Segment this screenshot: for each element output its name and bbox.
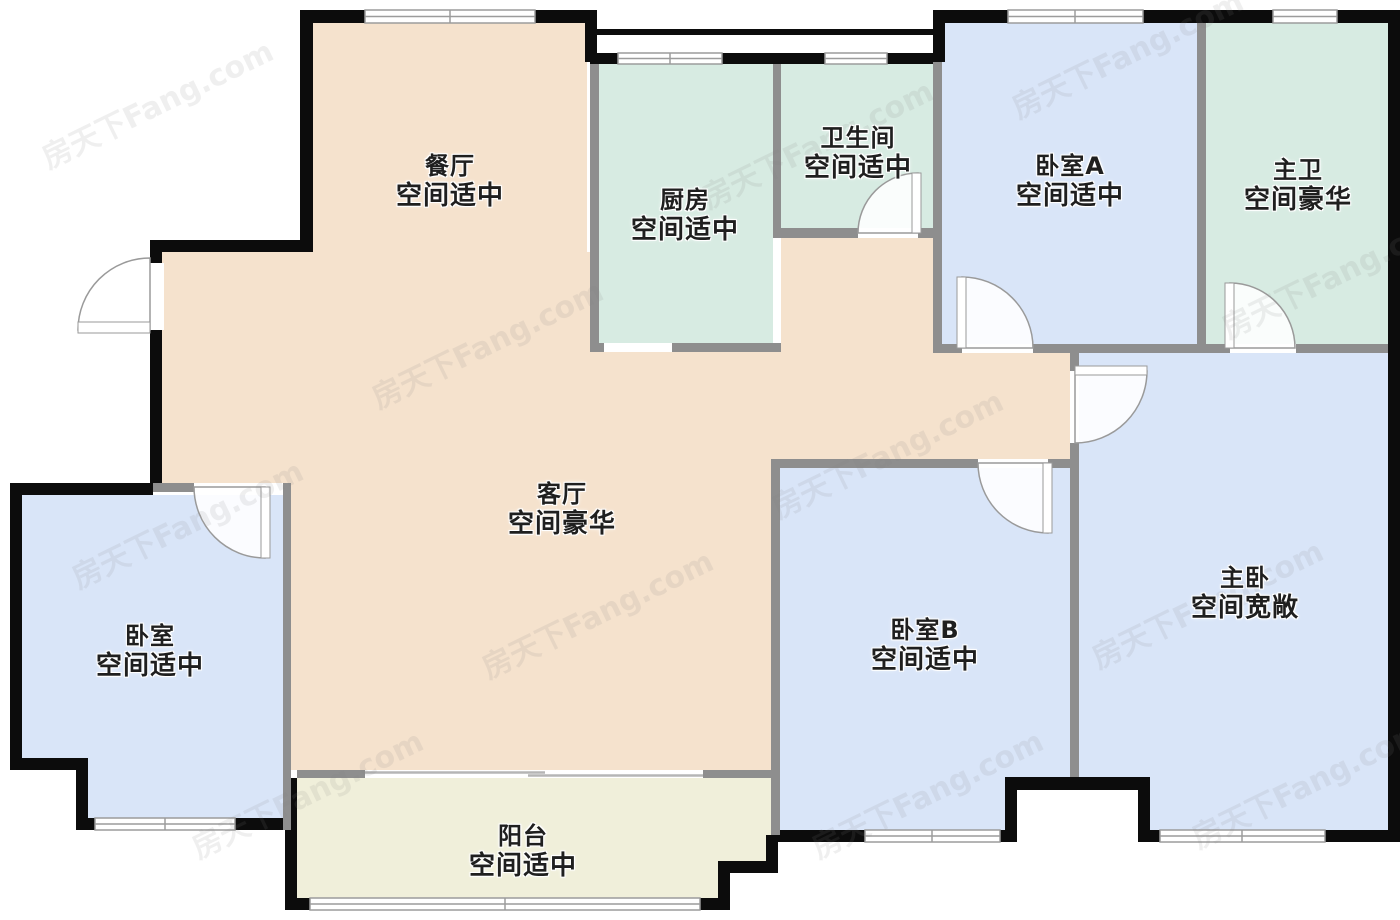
- room-label-balcony: 阳台 空间适中: [469, 822, 577, 882]
- window-bedroom: [95, 818, 235, 830]
- hallway-fill: [587, 352, 1070, 459]
- window-bedroom-a: [1008, 10, 1143, 23]
- room-size-note: 空间适中: [631, 215, 739, 246]
- room-size-note: 空间适中: [469, 851, 577, 882]
- window-master-bath: [1273, 10, 1337, 23]
- room-label-master-bath: 主卫 空间豪华: [1244, 156, 1352, 216]
- room-name: 主卫: [1244, 156, 1352, 185]
- room-size-note: 空间宽敞: [1191, 593, 1299, 624]
- room-size-note: 空间适中: [396, 181, 504, 212]
- entry-door: [78, 258, 164, 333]
- room-label-bathroom: 卫生间 空间适中: [804, 124, 912, 184]
- room-size-note: 空间豪华: [1244, 185, 1352, 216]
- room-name: 餐厅: [396, 152, 504, 181]
- room-name: 卫生间: [804, 124, 912, 153]
- room-name: 卧室: [96, 622, 204, 651]
- room-name: 厨房: [631, 186, 739, 215]
- room-name: 卧室A: [1016, 152, 1124, 181]
- room-name: 客厅: [508, 480, 616, 509]
- room-label-master-bedroom: 主卧 空间宽敞: [1191, 564, 1299, 624]
- room-dining-fill: [312, 23, 587, 252]
- balcony-sliding-door: [365, 770, 703, 778]
- corridor-fill: [781, 238, 933, 352]
- window-balcony: [310, 898, 700, 910]
- window-kitchen: [618, 53, 722, 64]
- room-size-note: 空间豪华: [508, 509, 616, 540]
- room-size-note: 空间适中: [804, 153, 912, 184]
- room-label-kitchen: 厨房 空间适中: [631, 186, 739, 246]
- window-master-bedroom: [1160, 830, 1325, 842]
- room-label-living: 客厅 空间豪华: [508, 480, 616, 540]
- room-name: 卧室B: [871, 616, 979, 645]
- window-bathroom: [825, 53, 887, 64]
- floorplan-svg: [0, 0, 1400, 920]
- room-size-note: 空间适中: [96, 651, 204, 682]
- room-label-bedroom: 卧室 空间适中: [96, 622, 204, 682]
- room-name: 主卧: [1191, 564, 1299, 593]
- room-label-bedroom-b: 卧室B 空间适中: [871, 616, 979, 676]
- room-size-note: 空间适中: [871, 645, 979, 676]
- window-dining: [365, 10, 535, 23]
- room-label-bedroom-a: 卧室A 空间适中: [1016, 152, 1124, 212]
- kitchen-opening: [604, 343, 672, 352]
- room-fills: [22, 23, 1388, 898]
- room-name: 阳台: [469, 822, 577, 851]
- room-size-note: 空间适中: [1016, 181, 1124, 212]
- window-bedroom-b: [865, 830, 1000, 842]
- room-label-dining: 餐厅 空间适中: [396, 152, 504, 212]
